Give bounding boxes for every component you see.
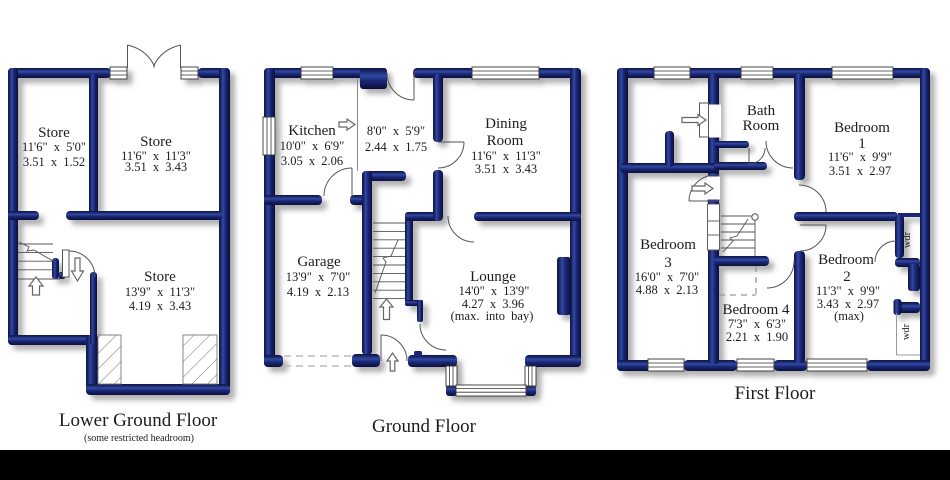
svg-text:(max. into bay): (max. into bay) [451,309,534,323]
svg-text:4.88 x 2.13: 4.88 x 2.13 [636,283,698,297]
svg-text:3.05 x 2.06: 3.05 x 2.06 [281,154,343,168]
svg-text:Garage: Garage [297,254,341,270]
svg-text:7'3" x 6'3": 7'3" x 6'3" [728,317,786,331]
svg-text:Ground Floor: Ground Floor [372,416,477,437]
svg-text:Bedroom 4: Bedroom 4 [722,302,790,318]
svg-text:4.19 x 2.13: 4.19 x 2.13 [287,285,349,299]
svg-text:16'0" x 7'0": 16'0" x 7'0" [635,270,699,284]
svg-text:11'3" x 9'9": 11'3" x 9'9" [816,284,880,298]
svg-text:3: 3 [664,255,672,271]
svg-text:11'6" x 9'9": 11'6" x 9'9" [828,150,892,164]
svg-text:3.51 x 1.52: 3.51 x 1.52 [23,155,85,169]
svg-text:2: 2 [843,269,851,285]
svg-text:Store: Store [144,269,176,285]
svg-text:wdr: wdr [902,231,913,248]
svg-text:10'0" x 6'9": 10'0" x 6'9" [280,139,344,153]
svg-text:Bedroom: Bedroom [834,120,890,136]
svg-text:2.44 x 1.75: 2.44 x 1.75 [365,140,427,154]
svg-text:3.51 x 3.43: 3.51 x 3.43 [125,160,187,174]
svg-text:wdr: wdr [901,323,912,340]
svg-text:2.21 x 1.90: 2.21 x 1.90 [726,330,788,344]
svg-text:(max): (max) [834,309,864,323]
svg-text:Bedroom: Bedroom [640,237,696,253]
svg-text:11'6" x 5'0": 11'6" x 5'0" [22,140,86,154]
svg-text:Bath: Bath [747,103,776,119]
svg-text:Bedroom: Bedroom [818,252,874,268]
svg-text:First Floor: First Floor [735,383,816,404]
svg-text:3.51 x 2.97: 3.51 x 2.97 [829,164,891,178]
svg-text:Room: Room [487,133,524,149]
svg-text:13'9" x 11'3": 13'9" x 11'3" [125,285,195,299]
svg-text:Dining: Dining [485,116,527,132]
svg-text:13'9" x 7'0": 13'9" x 7'0" [286,270,350,284]
svg-text:Lounge: Lounge [470,269,516,285]
svg-text:8'0" x 5'9": 8'0" x 5'9" [367,124,425,138]
svg-text:11'6" x 11'3": 11'6" x 11'3" [471,149,541,163]
svg-text:Store: Store [38,125,70,141]
svg-text:Room: Room [743,118,780,134]
svg-text:Lower Ground Floor: Lower Ground Floor [59,410,218,431]
svg-text:Store: Store [140,134,172,150]
svg-text:Kitchen: Kitchen [288,123,336,139]
svg-text:(some restricted headroom): (some restricted headroom) [84,433,194,444]
svg-text:3.51 x 3.43: 3.51 x 3.43 [475,162,537,176]
svg-text:4.19 x 3.43: 4.19 x 3.43 [129,299,191,313]
svg-text:14'0" x 13'9": 14'0" x 13'9" [459,284,530,298]
